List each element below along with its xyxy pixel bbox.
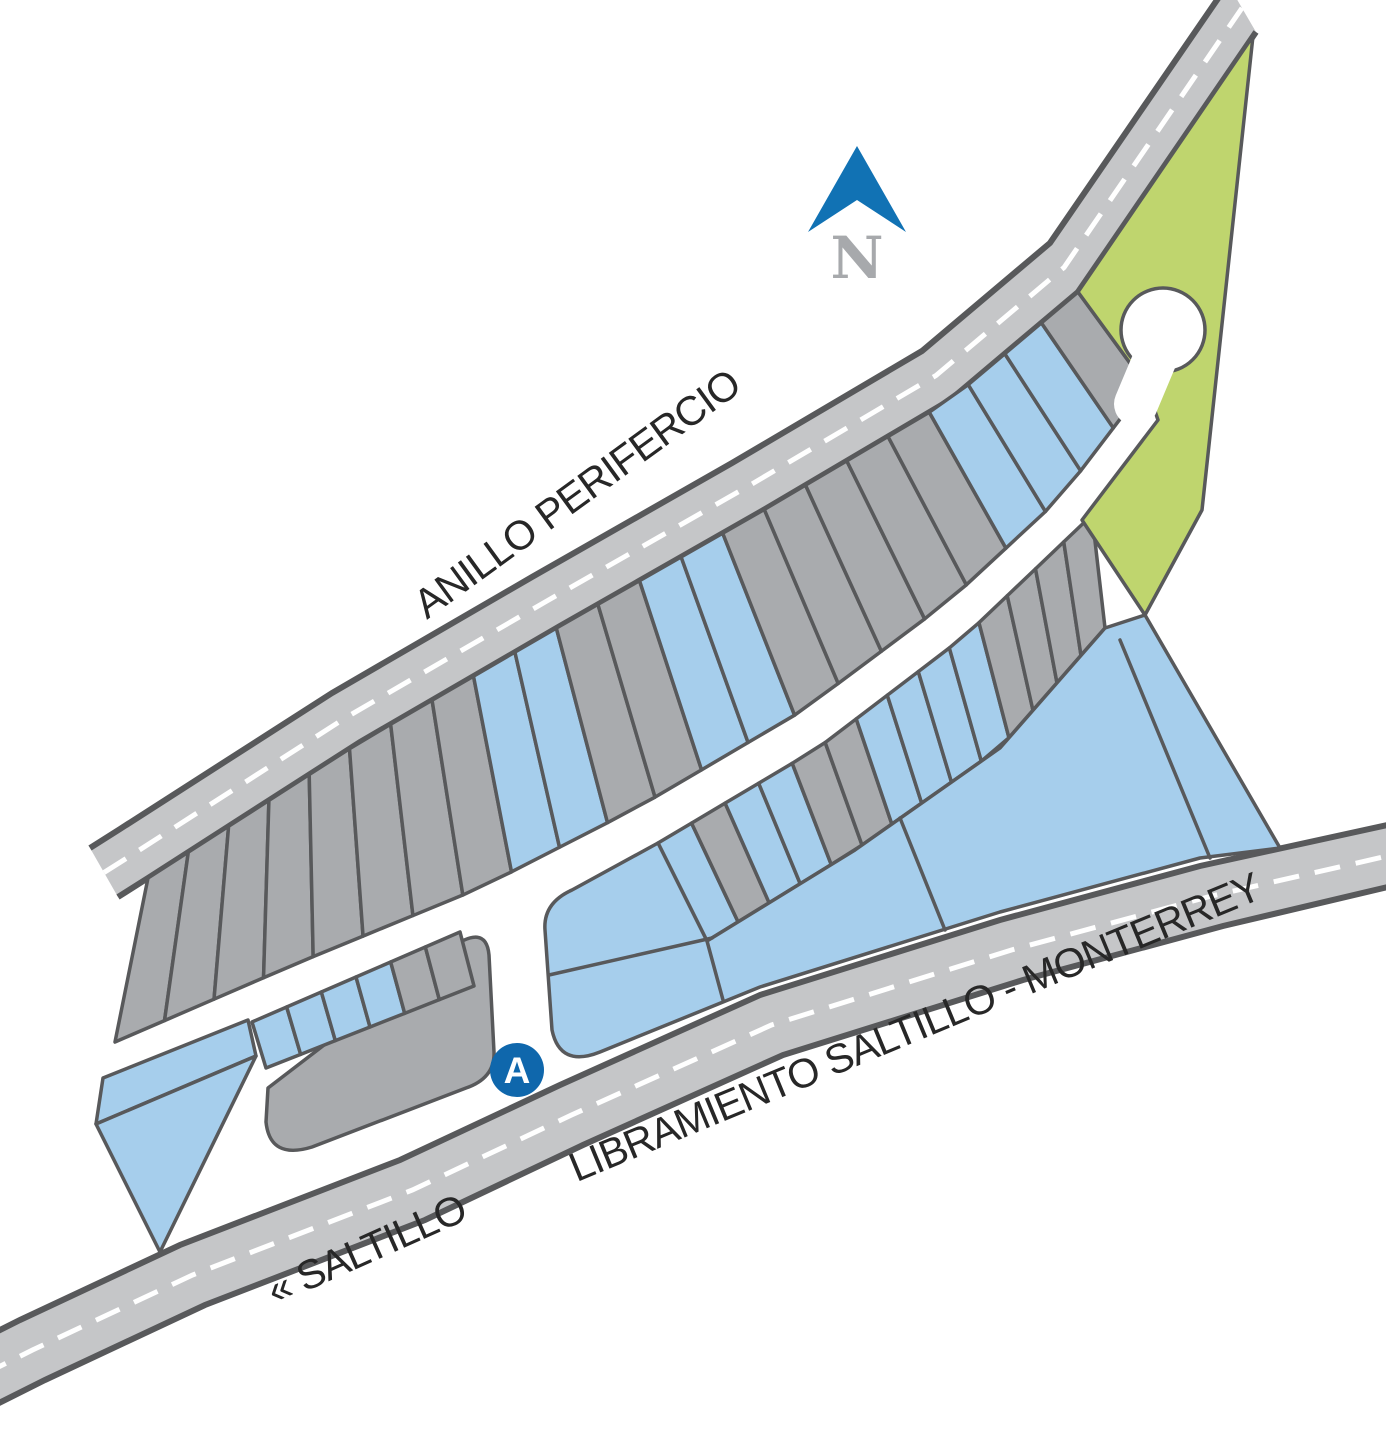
north-arrow-letter: N bbox=[830, 224, 883, 292]
marker-a: A bbox=[490, 1043, 544, 1097]
site-plan-canvas: N A ANILLO PERIFERCIO LIBRAMIENTO SALTIL… bbox=[0, 0, 1386, 1454]
marker-a-label: A bbox=[504, 1050, 531, 1091]
cul-de-sac-neck bbox=[1136, 342, 1162, 404]
north-arrow-icon bbox=[808, 146, 906, 232]
site-plan-map: N A ANILLO PERIFERCIO LIBRAMIENTO SALTIL… bbox=[0, 0, 1386, 1454]
north-arrow: N bbox=[808, 146, 906, 292]
north-lot-strip-lot bbox=[264, 775, 314, 978]
